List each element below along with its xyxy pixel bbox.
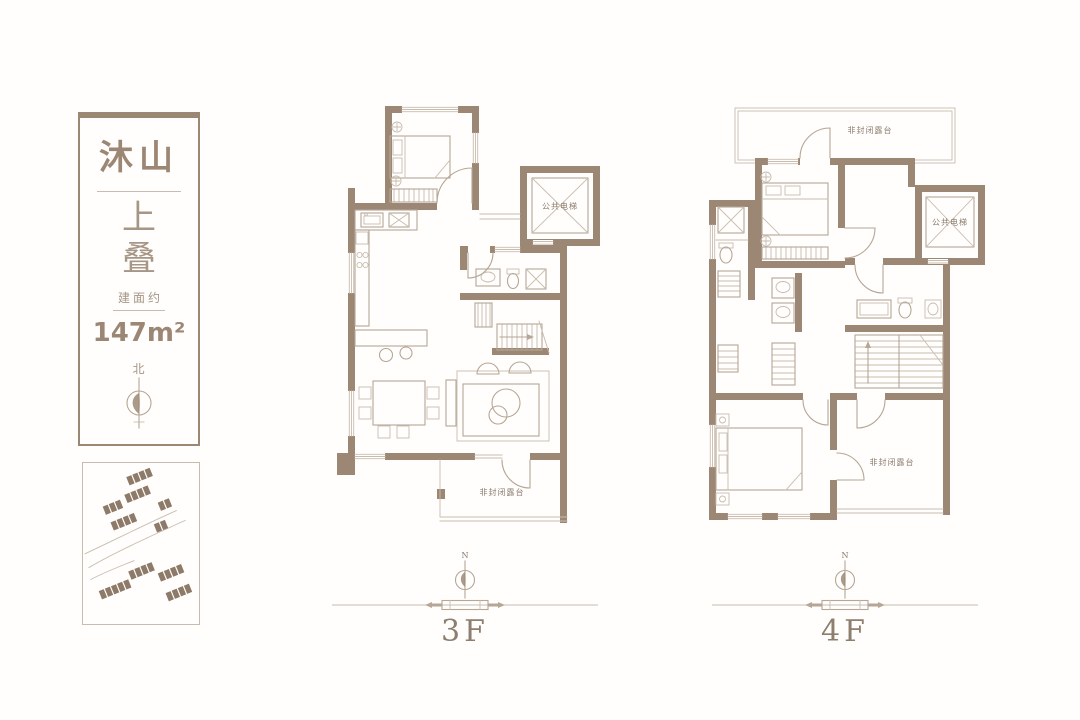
master-bed-4f	[716, 414, 802, 505]
compass-n-4f: N	[842, 551, 849, 560]
floor-label-3f: 3F	[415, 614, 515, 649]
site-map	[82, 462, 200, 625]
floorplan-4f: 非封闭露台	[700, 95, 990, 535]
unit-type-char-2: 叠	[122, 239, 156, 280]
floorplan-poster: 沐山 上 叠 建面约 147m² 北	[0, 0, 1080, 720]
doors-3f	[437, 168, 530, 488]
terrace-4f: 非封闭露台	[837, 457, 943, 513]
divider	[97, 191, 181, 192]
compass-icon	[119, 377, 159, 429]
stairs-4f	[855, 335, 943, 388]
terrace-top-label-4f: 非封闭露台	[848, 125, 893, 135]
elevator-shaft-4f: 公共电梯	[926, 197, 974, 247]
bedroom-furniture-3f	[390, 122, 450, 202]
area-label: 建面约	[113, 289, 165, 311]
floor-label-4f: 4F	[795, 614, 895, 649]
island-3f	[355, 330, 427, 362]
scale-bar-3f	[332, 596, 598, 614]
north-label: 北	[132, 360, 145, 377]
terrace-label-3f: 非封闭露台	[480, 487, 525, 497]
elevator-label-4f: 公共电梯	[932, 217, 968, 227]
kitchen-furniture-3f	[355, 210, 417, 326]
bedroom-furniture-4f	[761, 172, 828, 259]
unit-type-char-1: 上	[122, 198, 156, 239]
bathroom-fixtures-4f	[857, 298, 941, 318]
roof-terrace-4f: 非封闭露台	[735, 108, 955, 163]
closet-3f	[475, 303, 492, 327]
floorplan-3f: 公共电梯	[330, 93, 615, 538]
compass-icon-4f: N	[831, 550, 859, 600]
bathroom-fixtures-3f	[476, 269, 546, 289]
info-card: 沐山 上 叠 建面约 147m² 北	[78, 112, 200, 446]
site-plan-icon	[83, 463, 197, 622]
compass-icon-3f: N	[451, 550, 479, 600]
walls-4f	[709, 158, 985, 520]
sofa-set-3f	[446, 362, 549, 441]
area-value: 147m²	[93, 318, 186, 348]
elevator-shaft-3f: 公共电梯	[532, 178, 588, 233]
brand-name: 沐山	[99, 130, 179, 179]
dining-set-3f	[359, 381, 439, 438]
scale-bar-4f	[712, 596, 978, 614]
elevator-label-3f: 公共电梯	[542, 201, 578, 211]
terrace-bottom-label-4f: 非封闭露台	[870, 457, 915, 467]
closets-4f	[718, 343, 795, 385]
compass-n-3f: N	[462, 551, 469, 560]
